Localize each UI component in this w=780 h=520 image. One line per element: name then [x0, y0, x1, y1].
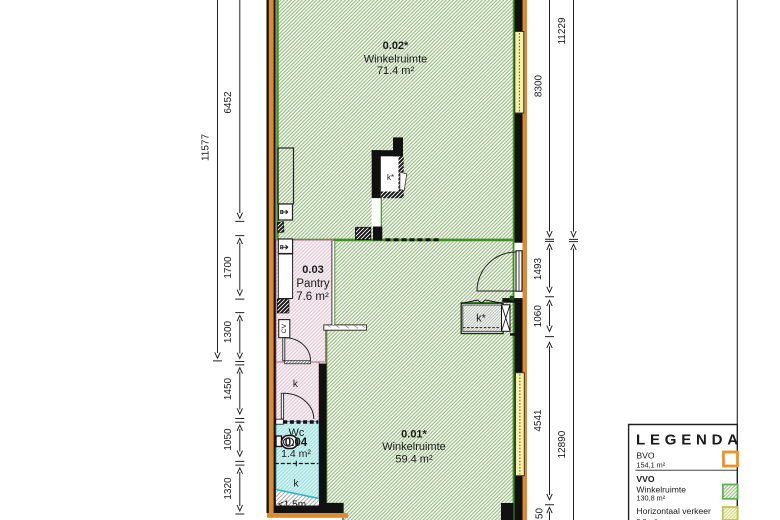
- svg-text:1050: 1050: [223, 428, 234, 451]
- svg-text:k*: k*: [476, 313, 487, 325]
- svg-text:1700: 1700: [223, 256, 234, 279]
- svg-text:1493: 1493: [533, 257, 544, 280]
- svg-text:7.6 m²: 7.6 m²: [296, 291, 329, 303]
- svg-text:LEGENDA: LEGENDA: [636, 432, 743, 449]
- svg-text:154,1 m²: 154,1 m²: [636, 460, 665, 469]
- svg-text:59.4 m²: 59.4 m²: [395, 453, 433, 465]
- svg-text:BVO: BVO: [636, 450, 654, 460]
- svg-text:50: 50: [535, 508, 546, 520]
- svg-text:0.03: 0.03: [302, 264, 323, 276]
- svg-text:CV: CV: [281, 323, 288, 333]
- svg-text:Pantry: Pantry: [296, 278, 329, 290]
- svg-text:11577: 11577: [201, 134, 212, 162]
- svg-text:<1.5m: <1.5m: [278, 500, 306, 511]
- svg-text:12890: 12890: [557, 430, 568, 458]
- svg-text:VVO: VVO: [636, 474, 654, 484]
- svg-text:0.01*: 0.01*: [401, 428, 427, 440]
- svg-text:1060: 1060: [533, 305, 544, 328]
- svg-text:1300: 1300: [223, 320, 234, 343]
- svg-text:0.02*: 0.02*: [383, 40, 409, 52]
- svg-text:71.4 m²: 71.4 m²: [377, 65, 415, 77]
- svg-text:1320: 1320: [223, 477, 234, 500]
- svg-text:1450: 1450: [223, 377, 234, 400]
- svg-text:130,8 m²: 130,8 m²: [636, 494, 665, 503]
- svg-text:11229: 11229: [557, 17, 568, 45]
- svg-text:k*: k*: [387, 173, 394, 182]
- svg-text:Winkelruimte: Winkelruimte: [382, 441, 446, 453]
- svg-text:1.4 m²: 1.4 m²: [281, 448, 311, 460]
- svg-text:8300: 8300: [534, 74, 545, 97]
- svg-text:6452: 6452: [223, 91, 234, 114]
- svg-text:Horizontaal verkeer: Horizontaal verkeer: [636, 506, 711, 516]
- svg-text:4541: 4541: [533, 409, 544, 432]
- svg-text:Winkelruimte: Winkelruimte: [364, 54, 428, 66]
